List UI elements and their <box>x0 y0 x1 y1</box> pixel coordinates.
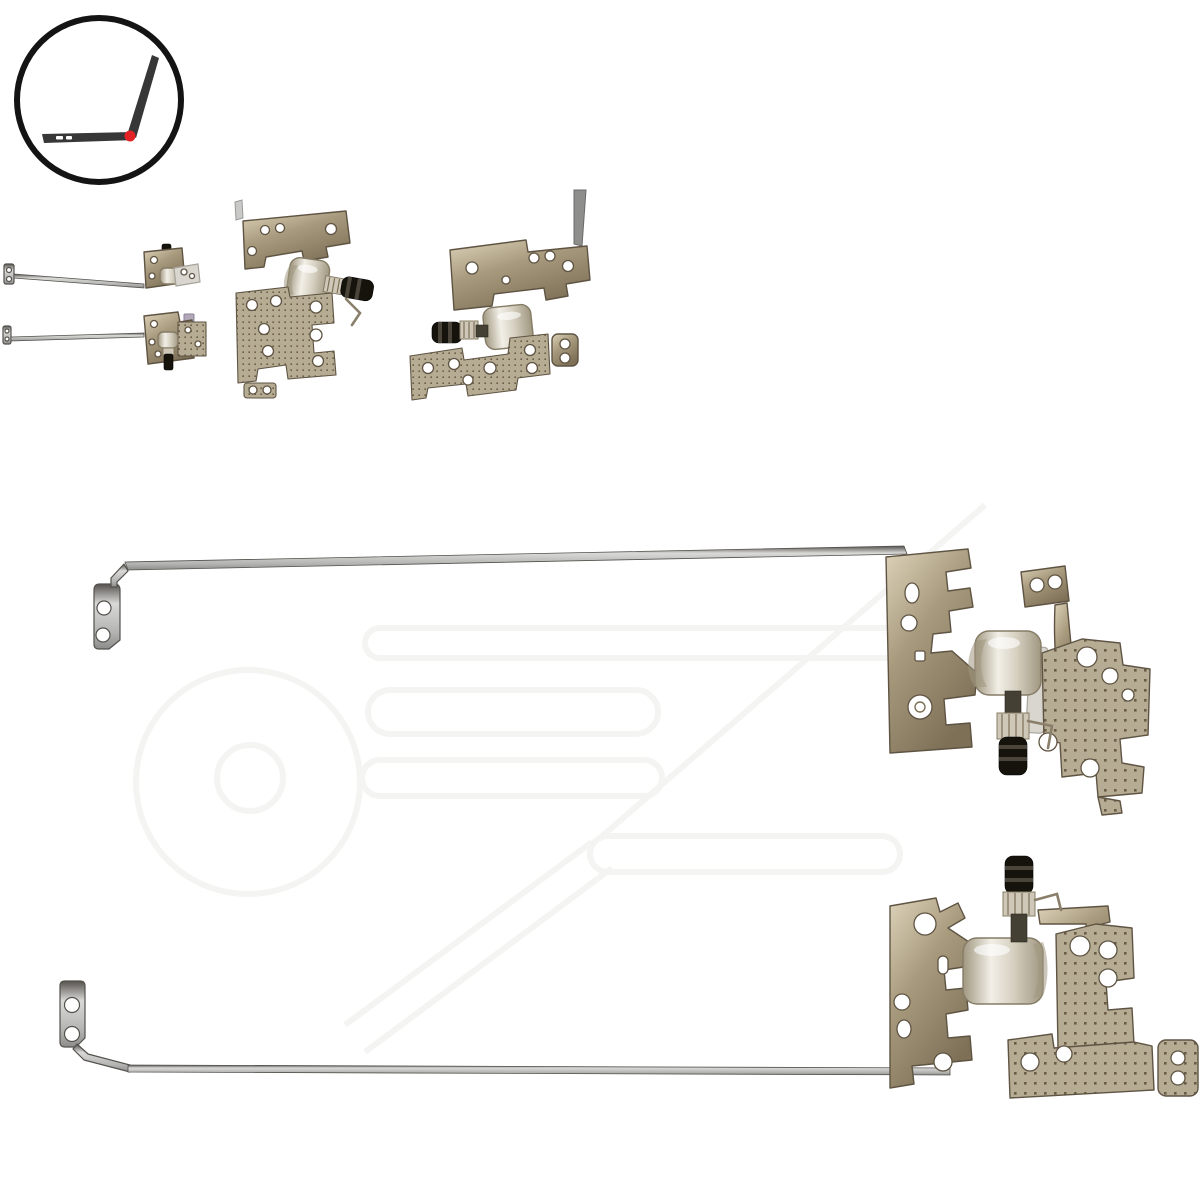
captive-screw-axle <box>1003 856 1061 942</box>
brand-logo <box>10 8 195 193</box>
thumbnail-left-hinge-closeup[interactable] <box>398 188 603 415</box>
mounting-tab <box>94 564 128 649</box>
logo-ring <box>17 18 181 182</box>
laptop-port-dash <box>66 136 72 140</box>
thumb-right-hinge <box>4 244 200 288</box>
laptop-port-dash <box>56 136 63 140</box>
thumbnail-hinge-pair[interactable] <box>2 238 232 408</box>
hinge-barrel <box>968 631 1041 695</box>
thumb-left-hinge <box>3 312 206 370</box>
display-rail <box>125 546 907 570</box>
photo-left-hinge <box>40 848 1200 1150</box>
photo-right-hinge <box>80 535 1200 840</box>
closeup-perforated-plate <box>236 287 336 398</box>
closeup-bracket <box>450 240 590 310</box>
closeup-screw <box>432 321 488 343</box>
hinge-barrel <box>963 938 1048 1004</box>
thumbnail-right-hinge-closeup[interactable] <box>228 193 408 405</box>
display-rail <box>128 1065 950 1075</box>
hinge-dot-icon <box>125 131 136 142</box>
hinge-bracket <box>886 549 977 753</box>
rail-stub <box>235 200 243 220</box>
hinge-wire <box>346 299 360 325</box>
rail-stub <box>574 190 586 246</box>
perforated-mounting-plate <box>1039 639 1150 815</box>
mounting-tab <box>60 981 130 1072</box>
product-photo-canvas <box>0 0 1200 1200</box>
hinge-bracket <box>890 898 972 1088</box>
